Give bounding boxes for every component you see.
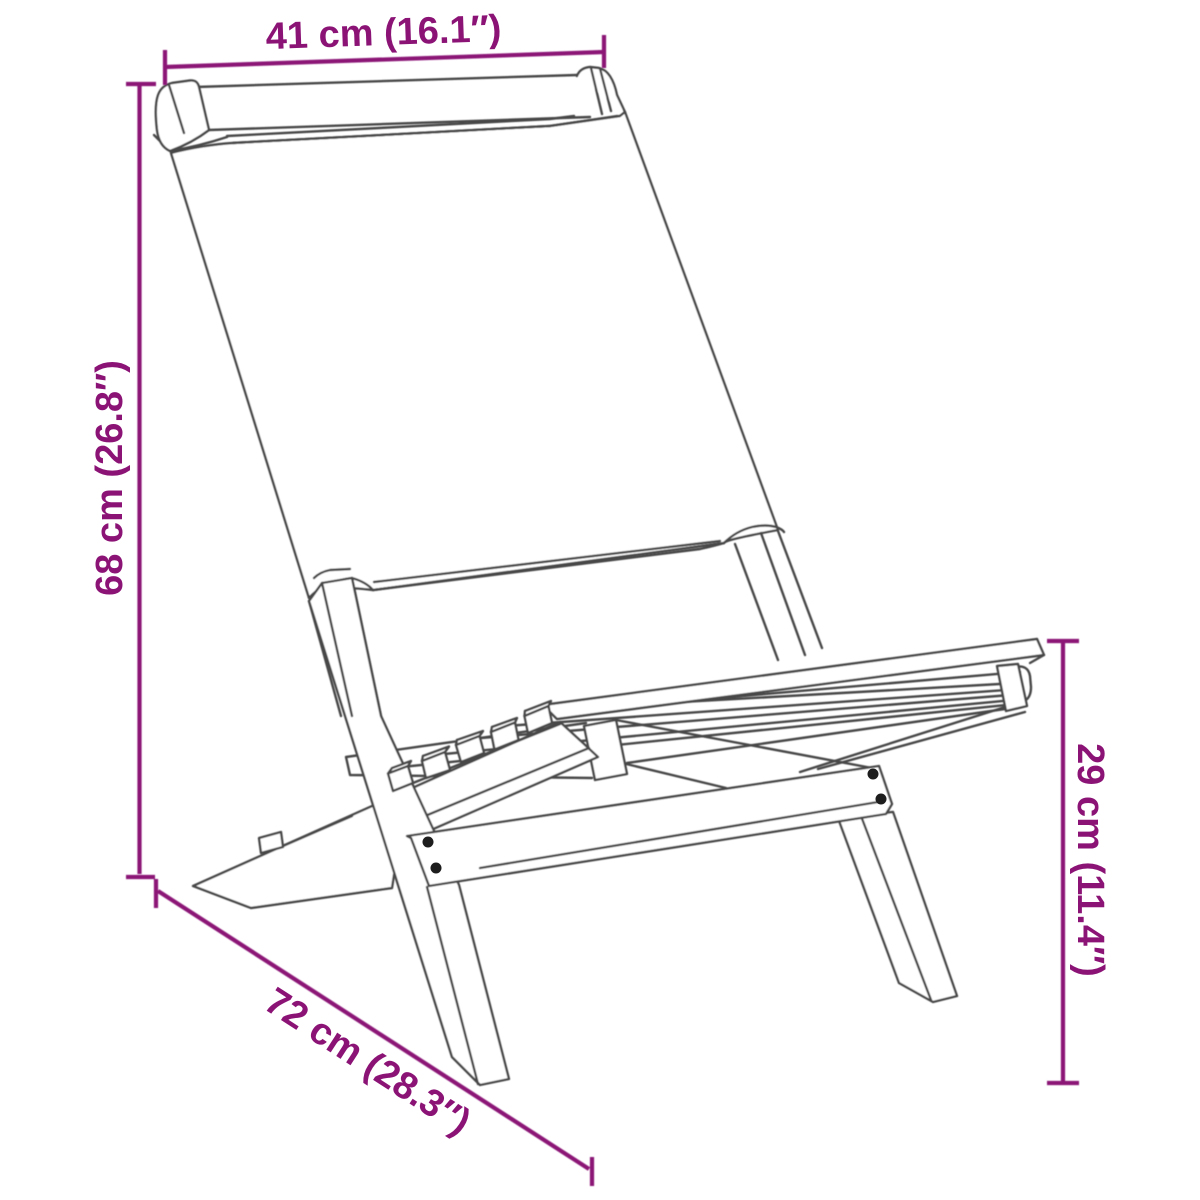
svg-text:68 cm (26.8″): 68 cm (26.8″) (89, 360, 131, 596)
svg-text:29 cm (11.4″): 29 cm (11.4″) (1069, 743, 1111, 977)
svg-text:41 cm (16.1″): 41 cm (16.1″) (265, 8, 502, 58)
